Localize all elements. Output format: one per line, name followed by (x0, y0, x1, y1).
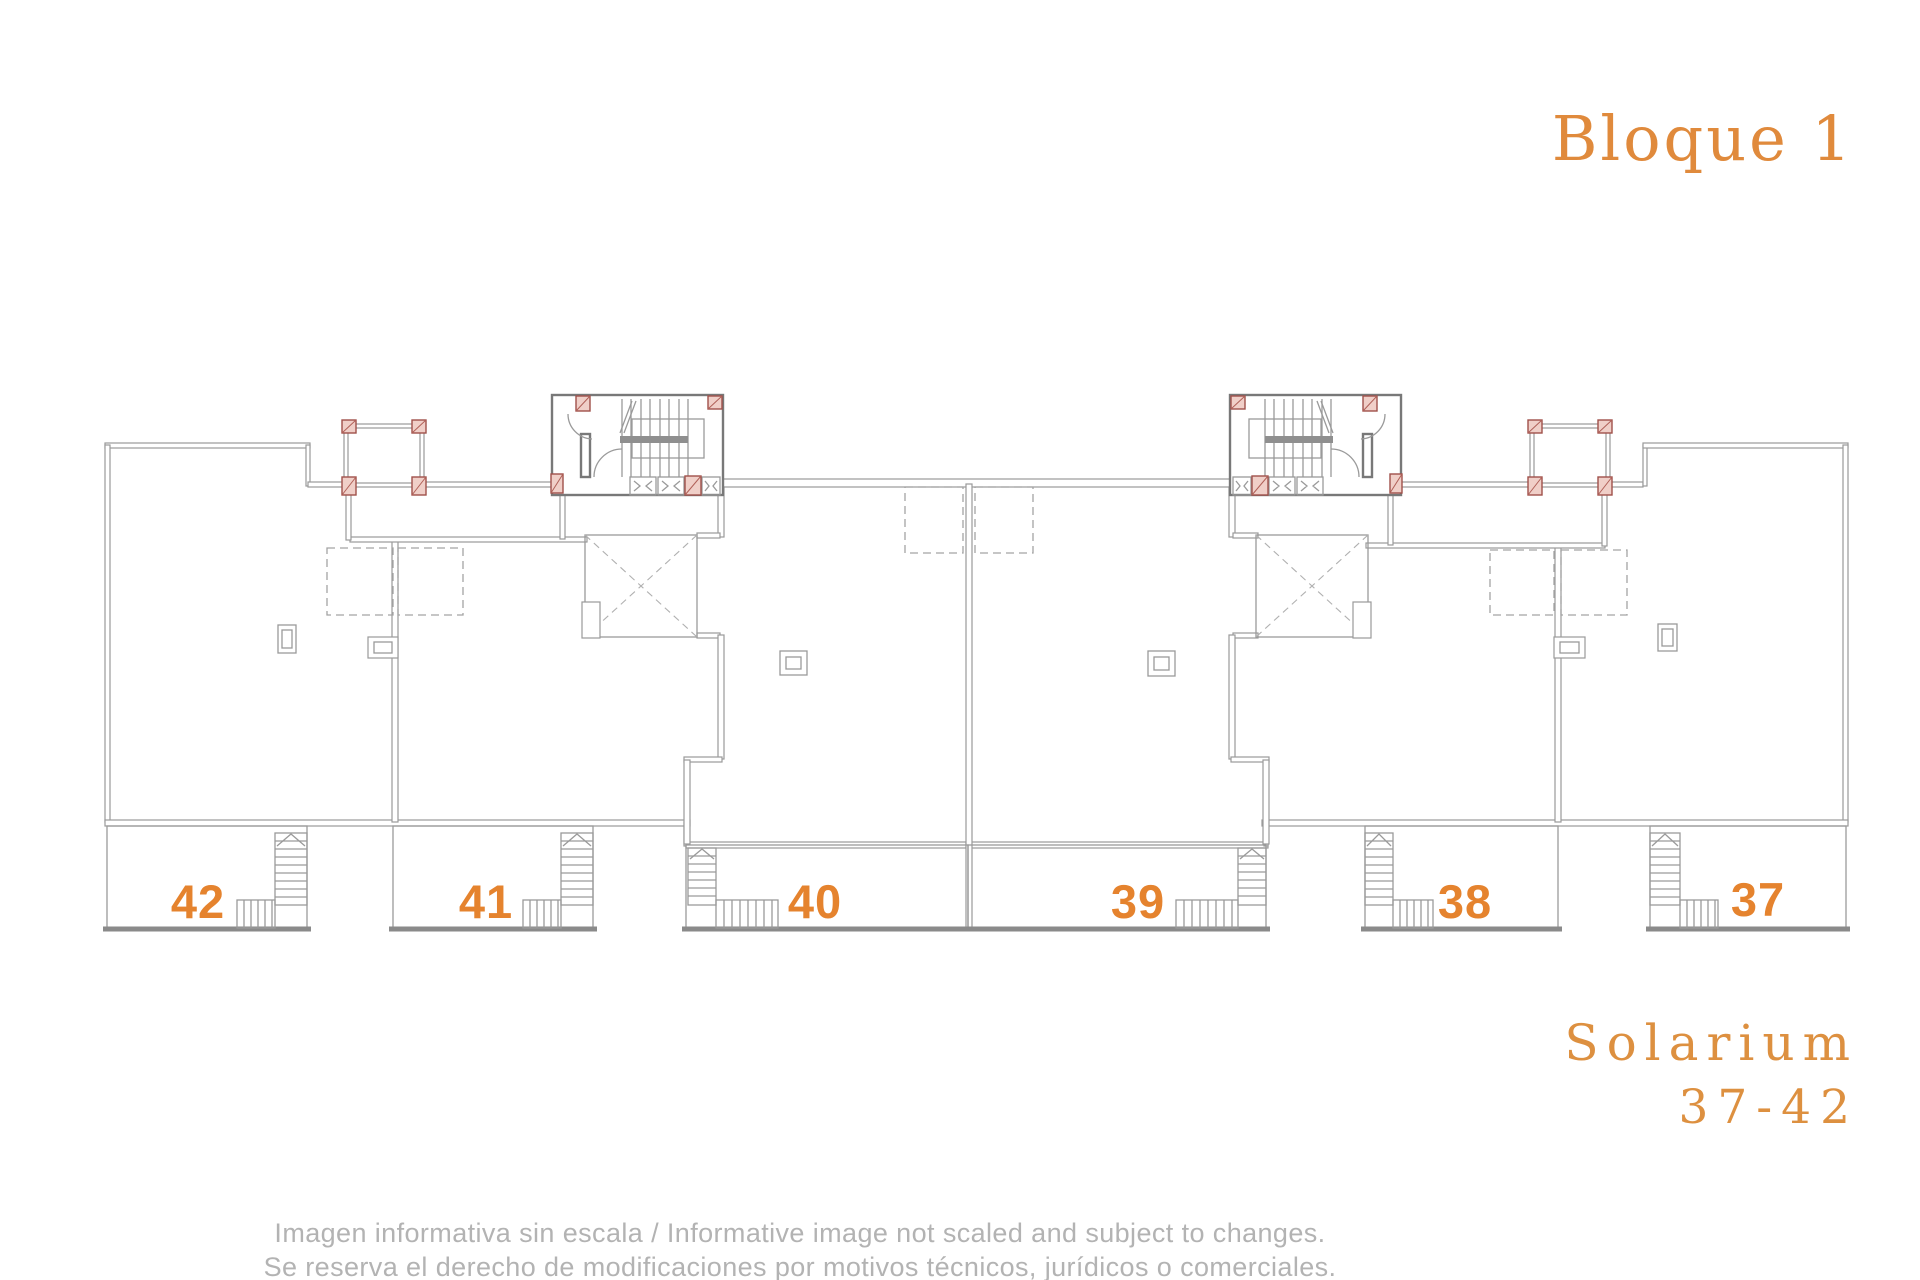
solarium-range: 37-42 (1564, 1080, 1859, 1135)
solarium-label: Solarium 37-42 (1564, 1014, 1850, 1135)
unit-number-39: 39 (1111, 875, 1165, 928)
vent (1658, 624, 1677, 651)
unit-number-40: 40 (788, 875, 842, 928)
unit-number-37: 37 (1731, 873, 1785, 926)
disclaimer-line-2: Se reserva el derecho de modificaciones … (260, 1250, 1340, 1280)
unit-numbers: 42 41 40 39 38 37 (171, 873, 1785, 928)
skylight-shaft-right (1256, 535, 1371, 638)
vent (1148, 651, 1175, 676)
pergola-right (1528, 420, 1612, 495)
dashed-skylight-boxes (327, 487, 1627, 615)
roof-vents (278, 624, 1677, 676)
unit-number-38: 38 (1438, 875, 1492, 928)
vent (1554, 637, 1585, 658)
unit-number-41: 41 (459, 875, 513, 928)
stair-core-right (1230, 395, 1402, 495)
party-walls (346, 484, 1607, 930)
disclaimer: Imagen informativa sin escala / Informat… (260, 1216, 1340, 1280)
unit-number-42: 42 (171, 875, 225, 928)
disclaimer-line-1: Imagen informativa sin escala / Informat… (260, 1216, 1340, 1250)
floorplan-page: Bloque 1 (0, 0, 1920, 1280)
stair-core-left (551, 395, 723, 495)
vent (780, 651, 807, 675)
vent (368, 637, 398, 658)
solarium-title: Solarium (1564, 1014, 1858, 1072)
pergola-left (342, 420, 426, 495)
building-outline (105, 443, 1848, 848)
vent (278, 625, 296, 653)
skylight-shaft-left (582, 535, 697, 638)
